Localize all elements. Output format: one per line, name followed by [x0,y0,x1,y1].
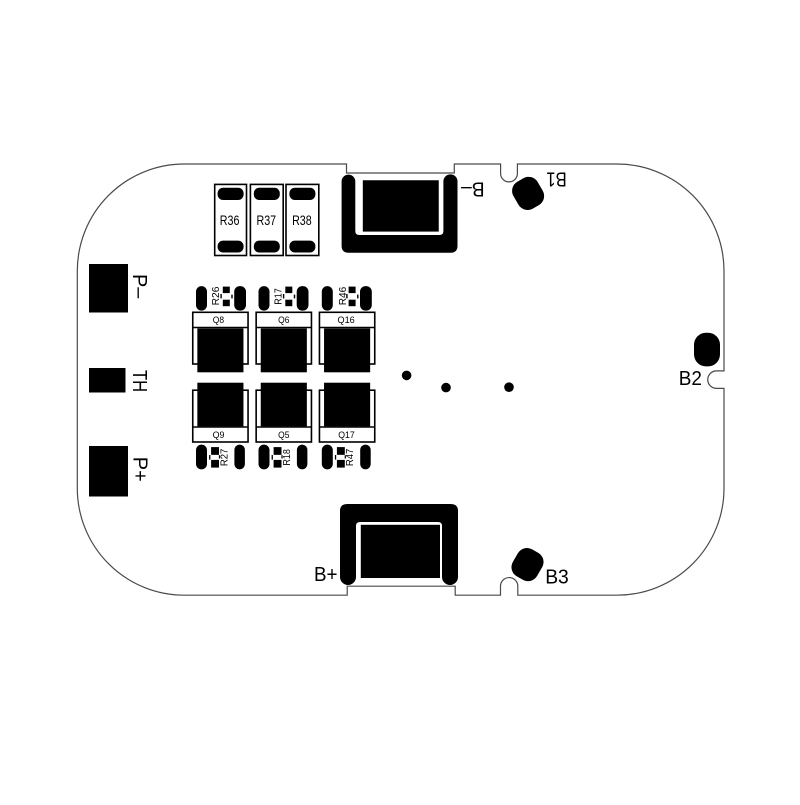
svg-text:Q5: Q5 [278,430,289,440]
svg-text:R47: R47 [344,449,356,467]
svg-text:R36: R36 [220,212,240,228]
svg-text:B3: B3 [545,566,569,588]
svg-text:R37: R37 [257,212,277,228]
svg-text:B1: B1 [546,168,567,190]
svg-text:R27: R27 [218,449,230,467]
svg-text:R18: R18 [281,449,293,466]
svg-text:B–: B– [460,177,484,199]
svg-text:P–: P– [128,274,150,299]
svg-text:P+: P+ [128,457,150,482]
svg-text:Q8: Q8 [213,315,224,325]
svg-text:R17: R17 [273,288,285,305]
svg-text:Q17: Q17 [338,430,355,440]
svg-text:TH: TH [128,370,150,392]
svg-text:R38: R38 [292,212,312,228]
svg-text:B2: B2 [679,368,702,390]
svg-text:R26: R26 [210,286,222,305]
svg-text:Q9: Q9 [213,430,225,440]
svg-text:B+: B+ [314,564,338,586]
svg-text:Q6: Q6 [278,315,289,325]
svg-text:Q16: Q16 [338,315,355,325]
